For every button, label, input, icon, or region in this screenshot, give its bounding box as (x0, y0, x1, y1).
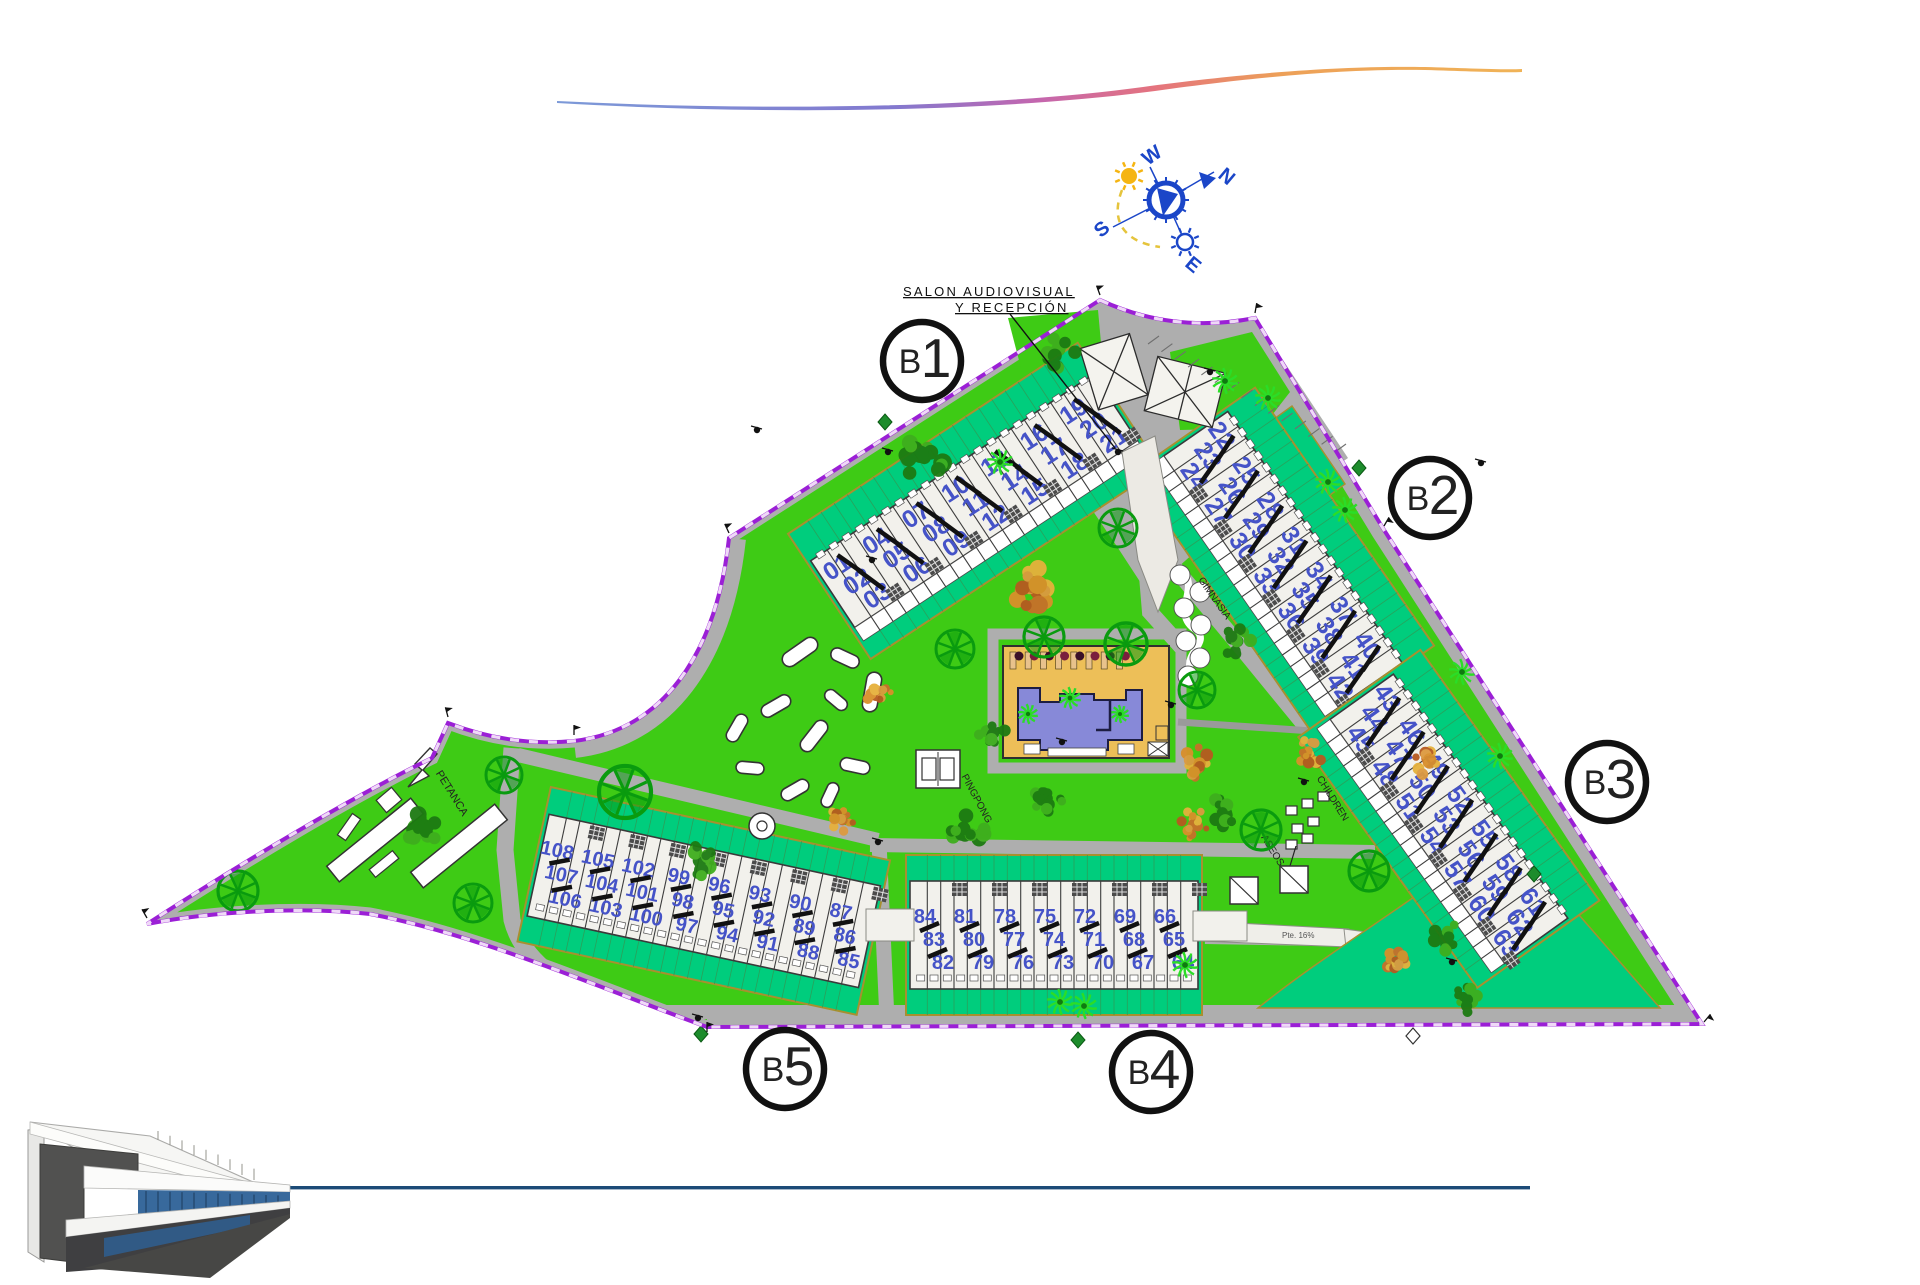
svg-text:77: 77 (1003, 929, 1025, 951)
svg-text:68: 68 (1123, 929, 1145, 951)
svg-text:3: 3 (1606, 748, 1637, 810)
svg-text:Pte. 16%: Pte. 16% (1282, 931, 1314, 940)
svg-text:2: 2 (1429, 464, 1460, 526)
svg-text:B: B (1128, 1054, 1151, 1092)
svg-text:95: 95 (710, 897, 736, 923)
svg-text:5: 5 (784, 1035, 815, 1097)
svg-text:83: 83 (923, 929, 945, 951)
svg-text:W: W (1138, 141, 1166, 170)
svg-text:B: B (899, 343, 922, 381)
svg-text:74: 74 (1043, 929, 1066, 951)
svg-text:98: 98 (669, 888, 695, 914)
svg-text:65: 65 (1163, 929, 1185, 951)
svg-text:4: 4 (1150, 1038, 1181, 1100)
svg-text:B: B (1407, 480, 1430, 518)
svg-text:80: 80 (963, 929, 985, 951)
svg-text:S: S (1090, 217, 1114, 242)
svg-text:1: 1 (921, 327, 952, 389)
svg-text:71: 71 (1083, 929, 1105, 951)
svg-text:B: B (1584, 764, 1607, 802)
svg-text:N: N (1214, 164, 1239, 190)
svg-text:86: 86 (832, 923, 858, 949)
svg-text:E: E (1181, 252, 1205, 277)
svg-text:89: 89 (791, 915, 817, 941)
svg-text:92: 92 (751, 906, 777, 932)
svg-text:Y RECEPCIÓN: Y RECEPCIÓN (955, 300, 1069, 315)
svg-text:B: B (762, 1051, 785, 1089)
svg-text:SALON AUDIOVISUAL: SALON AUDIOVISUAL (903, 284, 1075, 299)
